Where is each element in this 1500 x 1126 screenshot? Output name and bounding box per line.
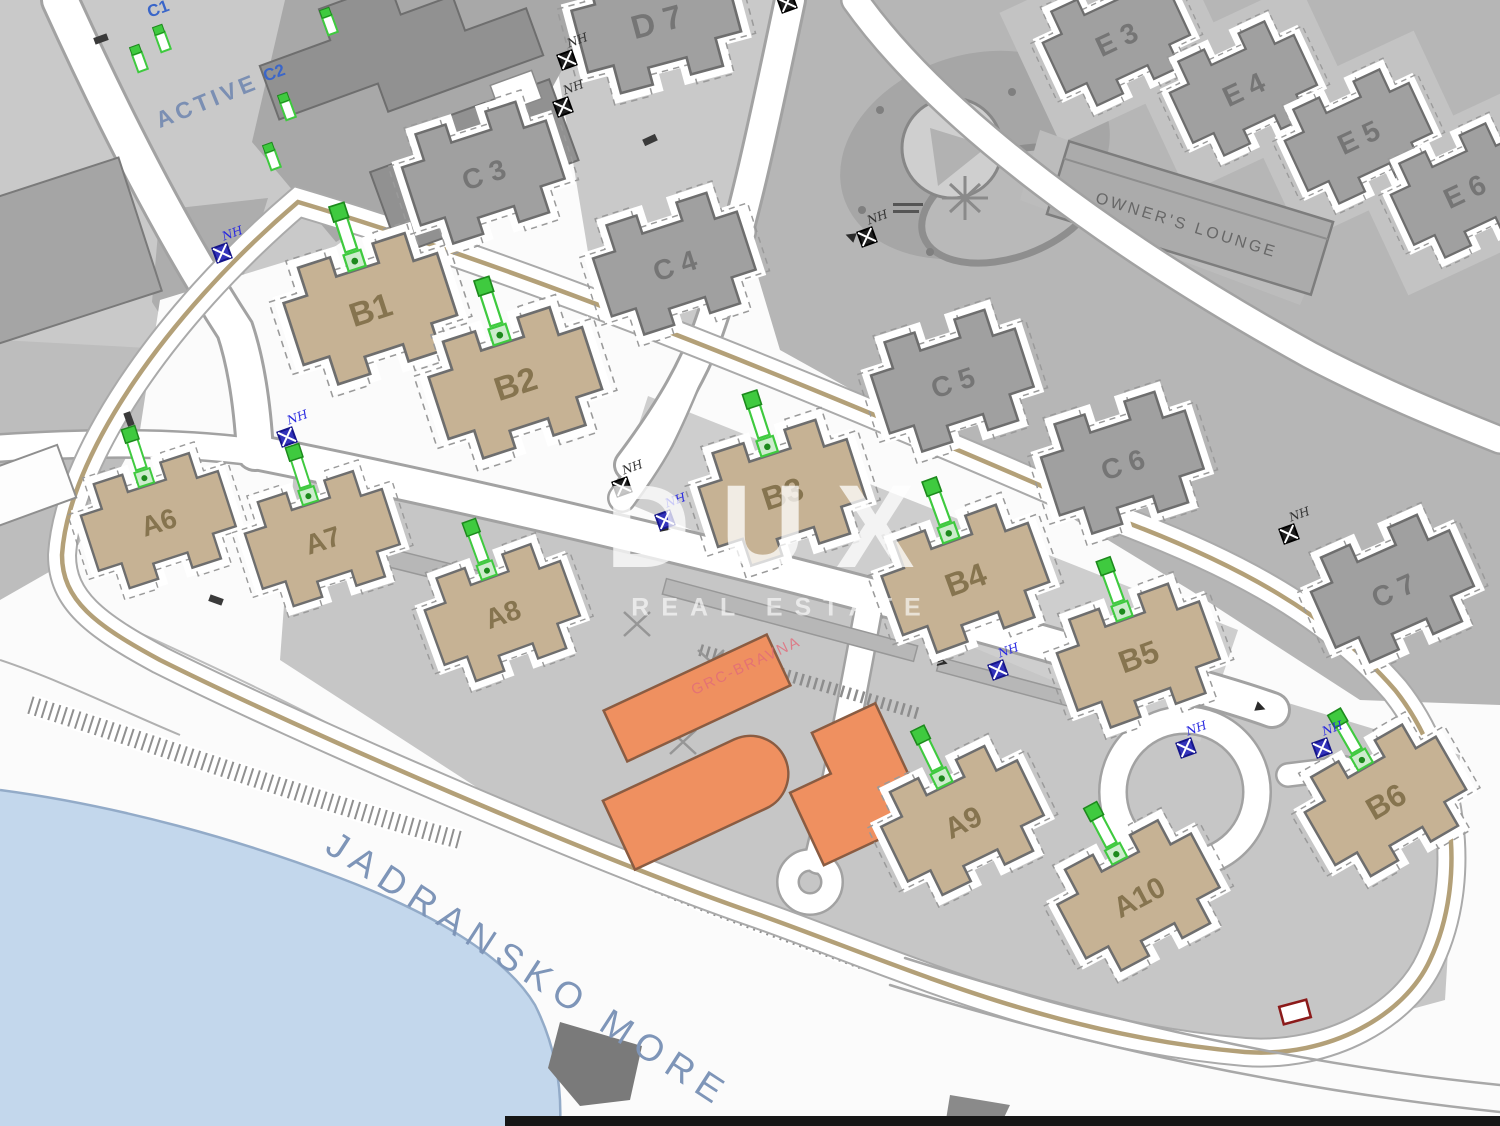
bottom-border-bar	[505, 1116, 1500, 1126]
site-plan-map: B1B2B3B4B5B6A6A7A8A9A10C 3C 4C 5C 6C 7D …	[0, 0, 1500, 1126]
site-plan-screenshot: B1B2B3B4B5B6A6A7A8A9A10C 3C 4C 5C 6C 7D …	[0, 0, 1500, 1126]
legend-text-block	[893, 203, 923, 206]
